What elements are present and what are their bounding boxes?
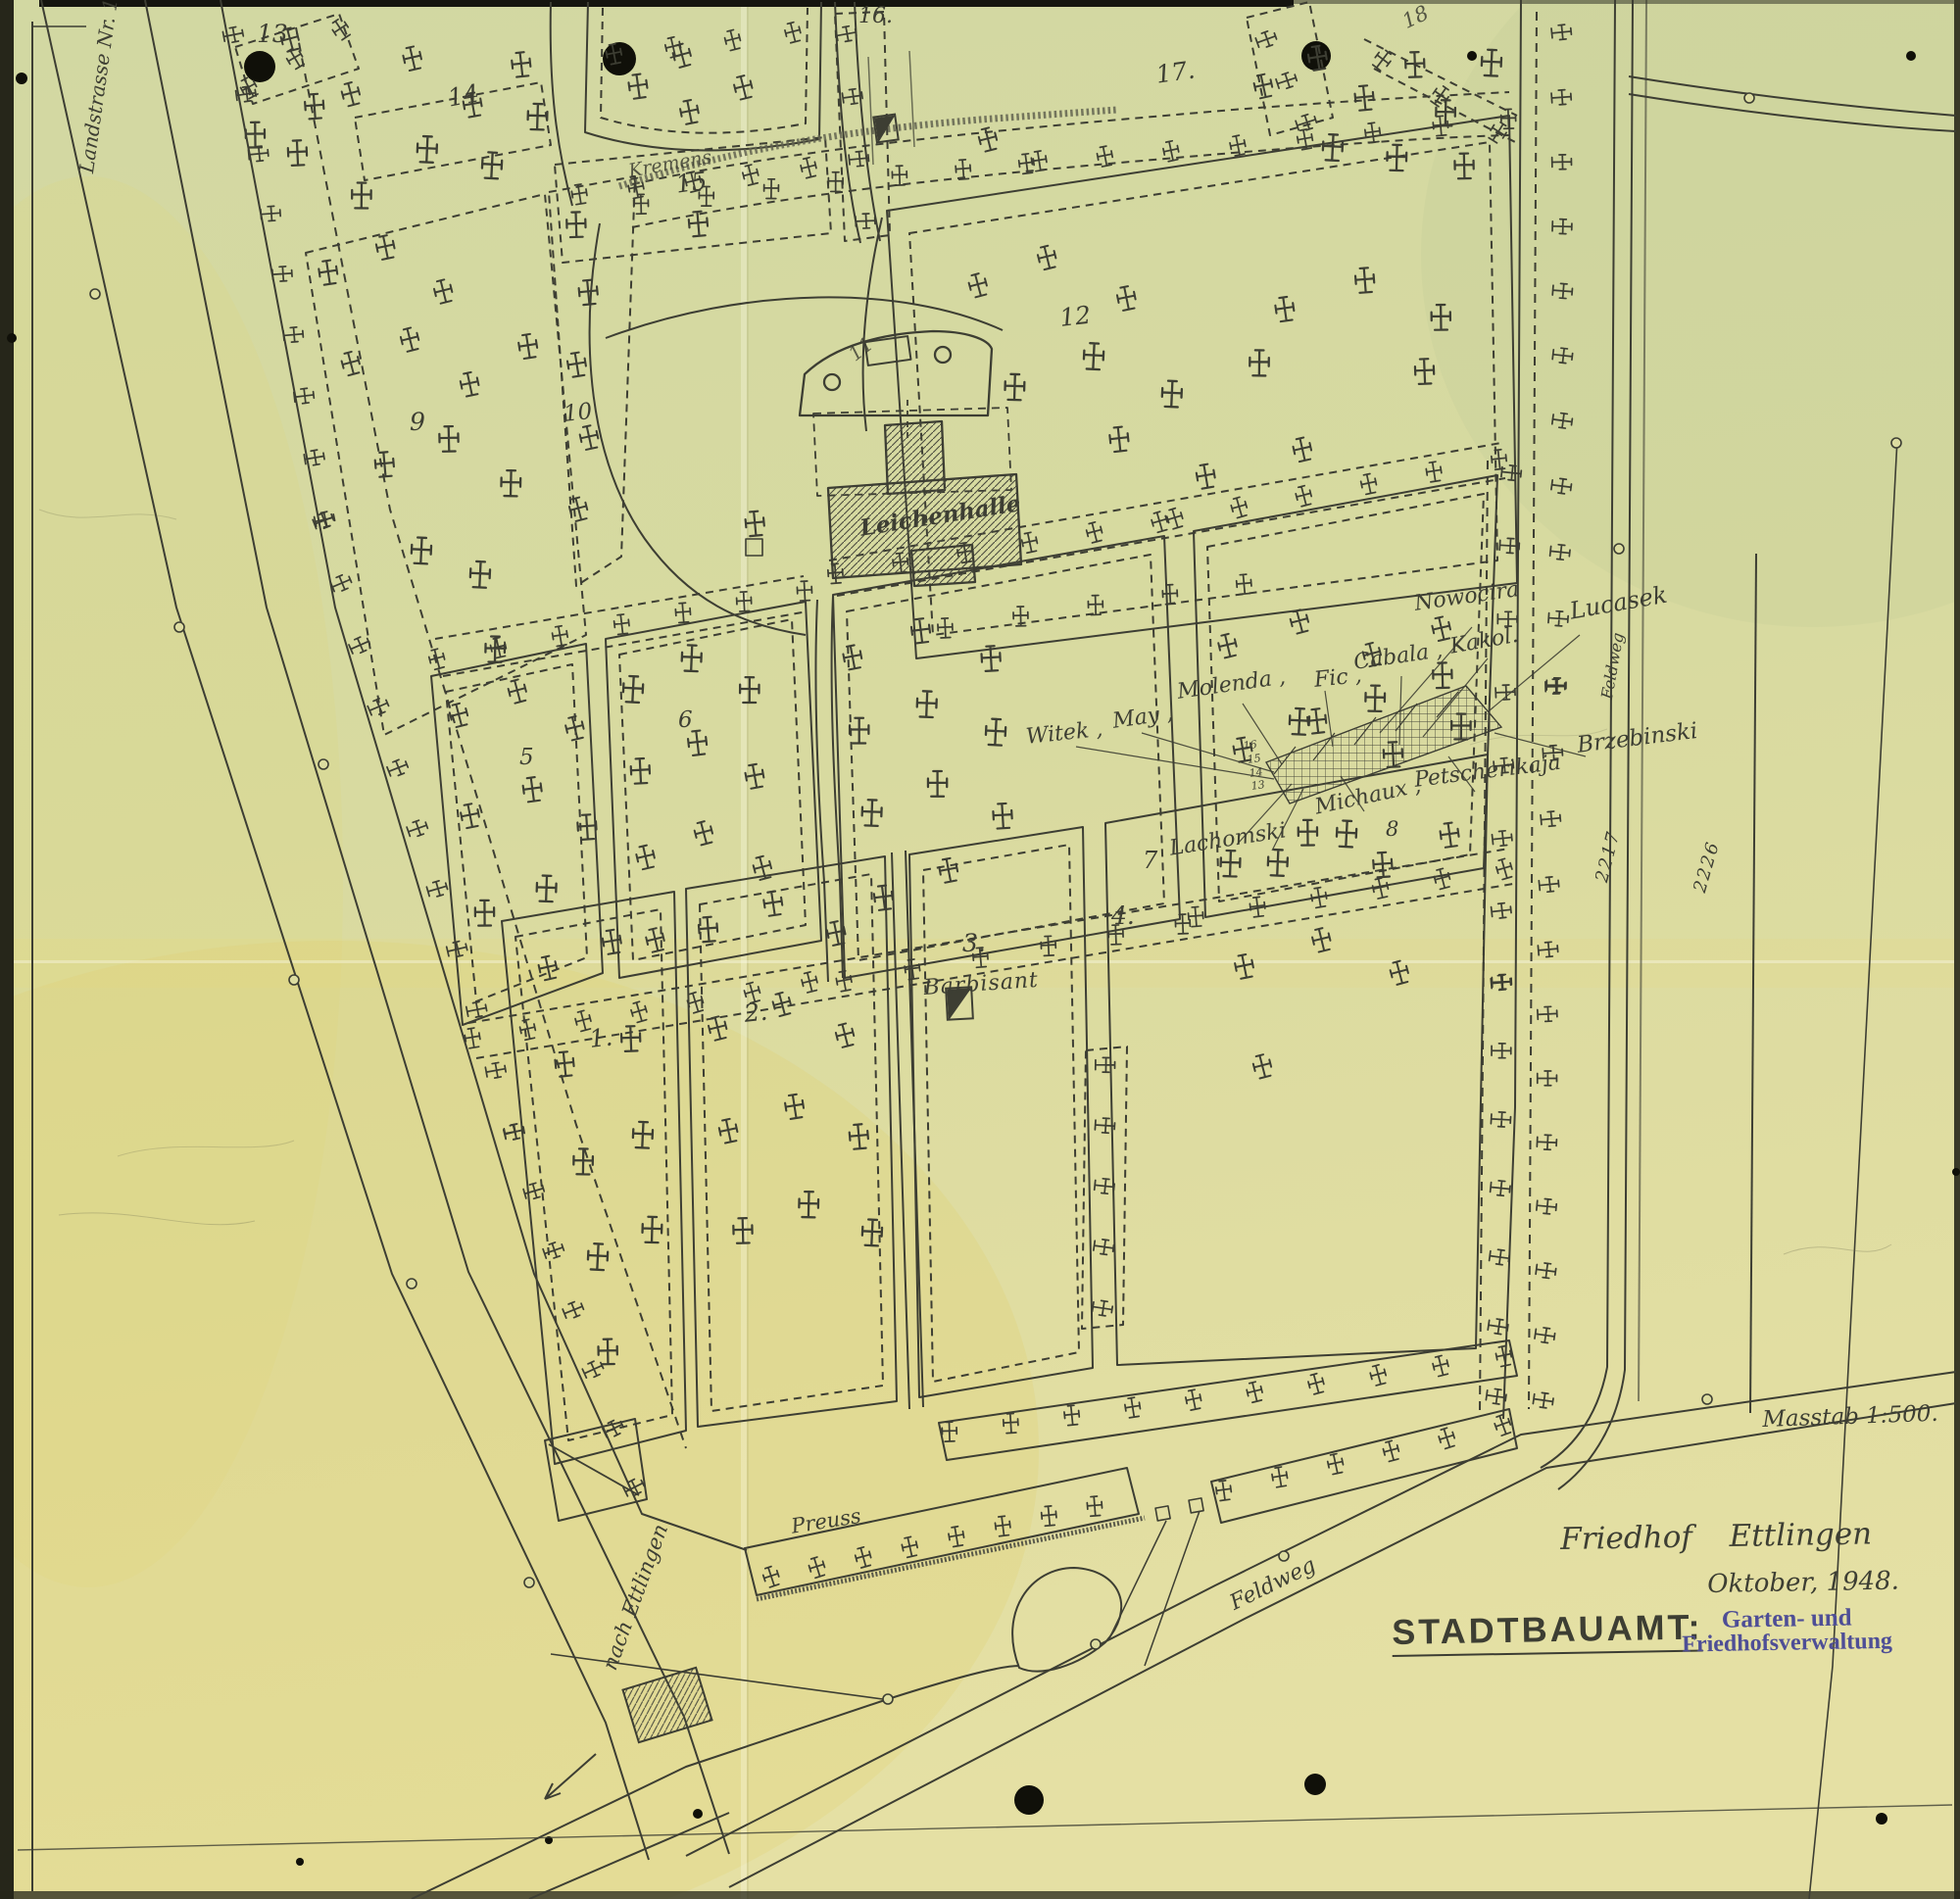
map-linework xyxy=(0,0,1960,1899)
scanned-cemetery-plan: Landstrasse Nr. 1 nach Ettlingen Feldweg… xyxy=(0,0,1960,1899)
punch-hole xyxy=(1014,1785,1044,1815)
punch-hole xyxy=(1304,1774,1326,1795)
punch-hole xyxy=(603,42,636,75)
punch-hole xyxy=(244,51,275,82)
